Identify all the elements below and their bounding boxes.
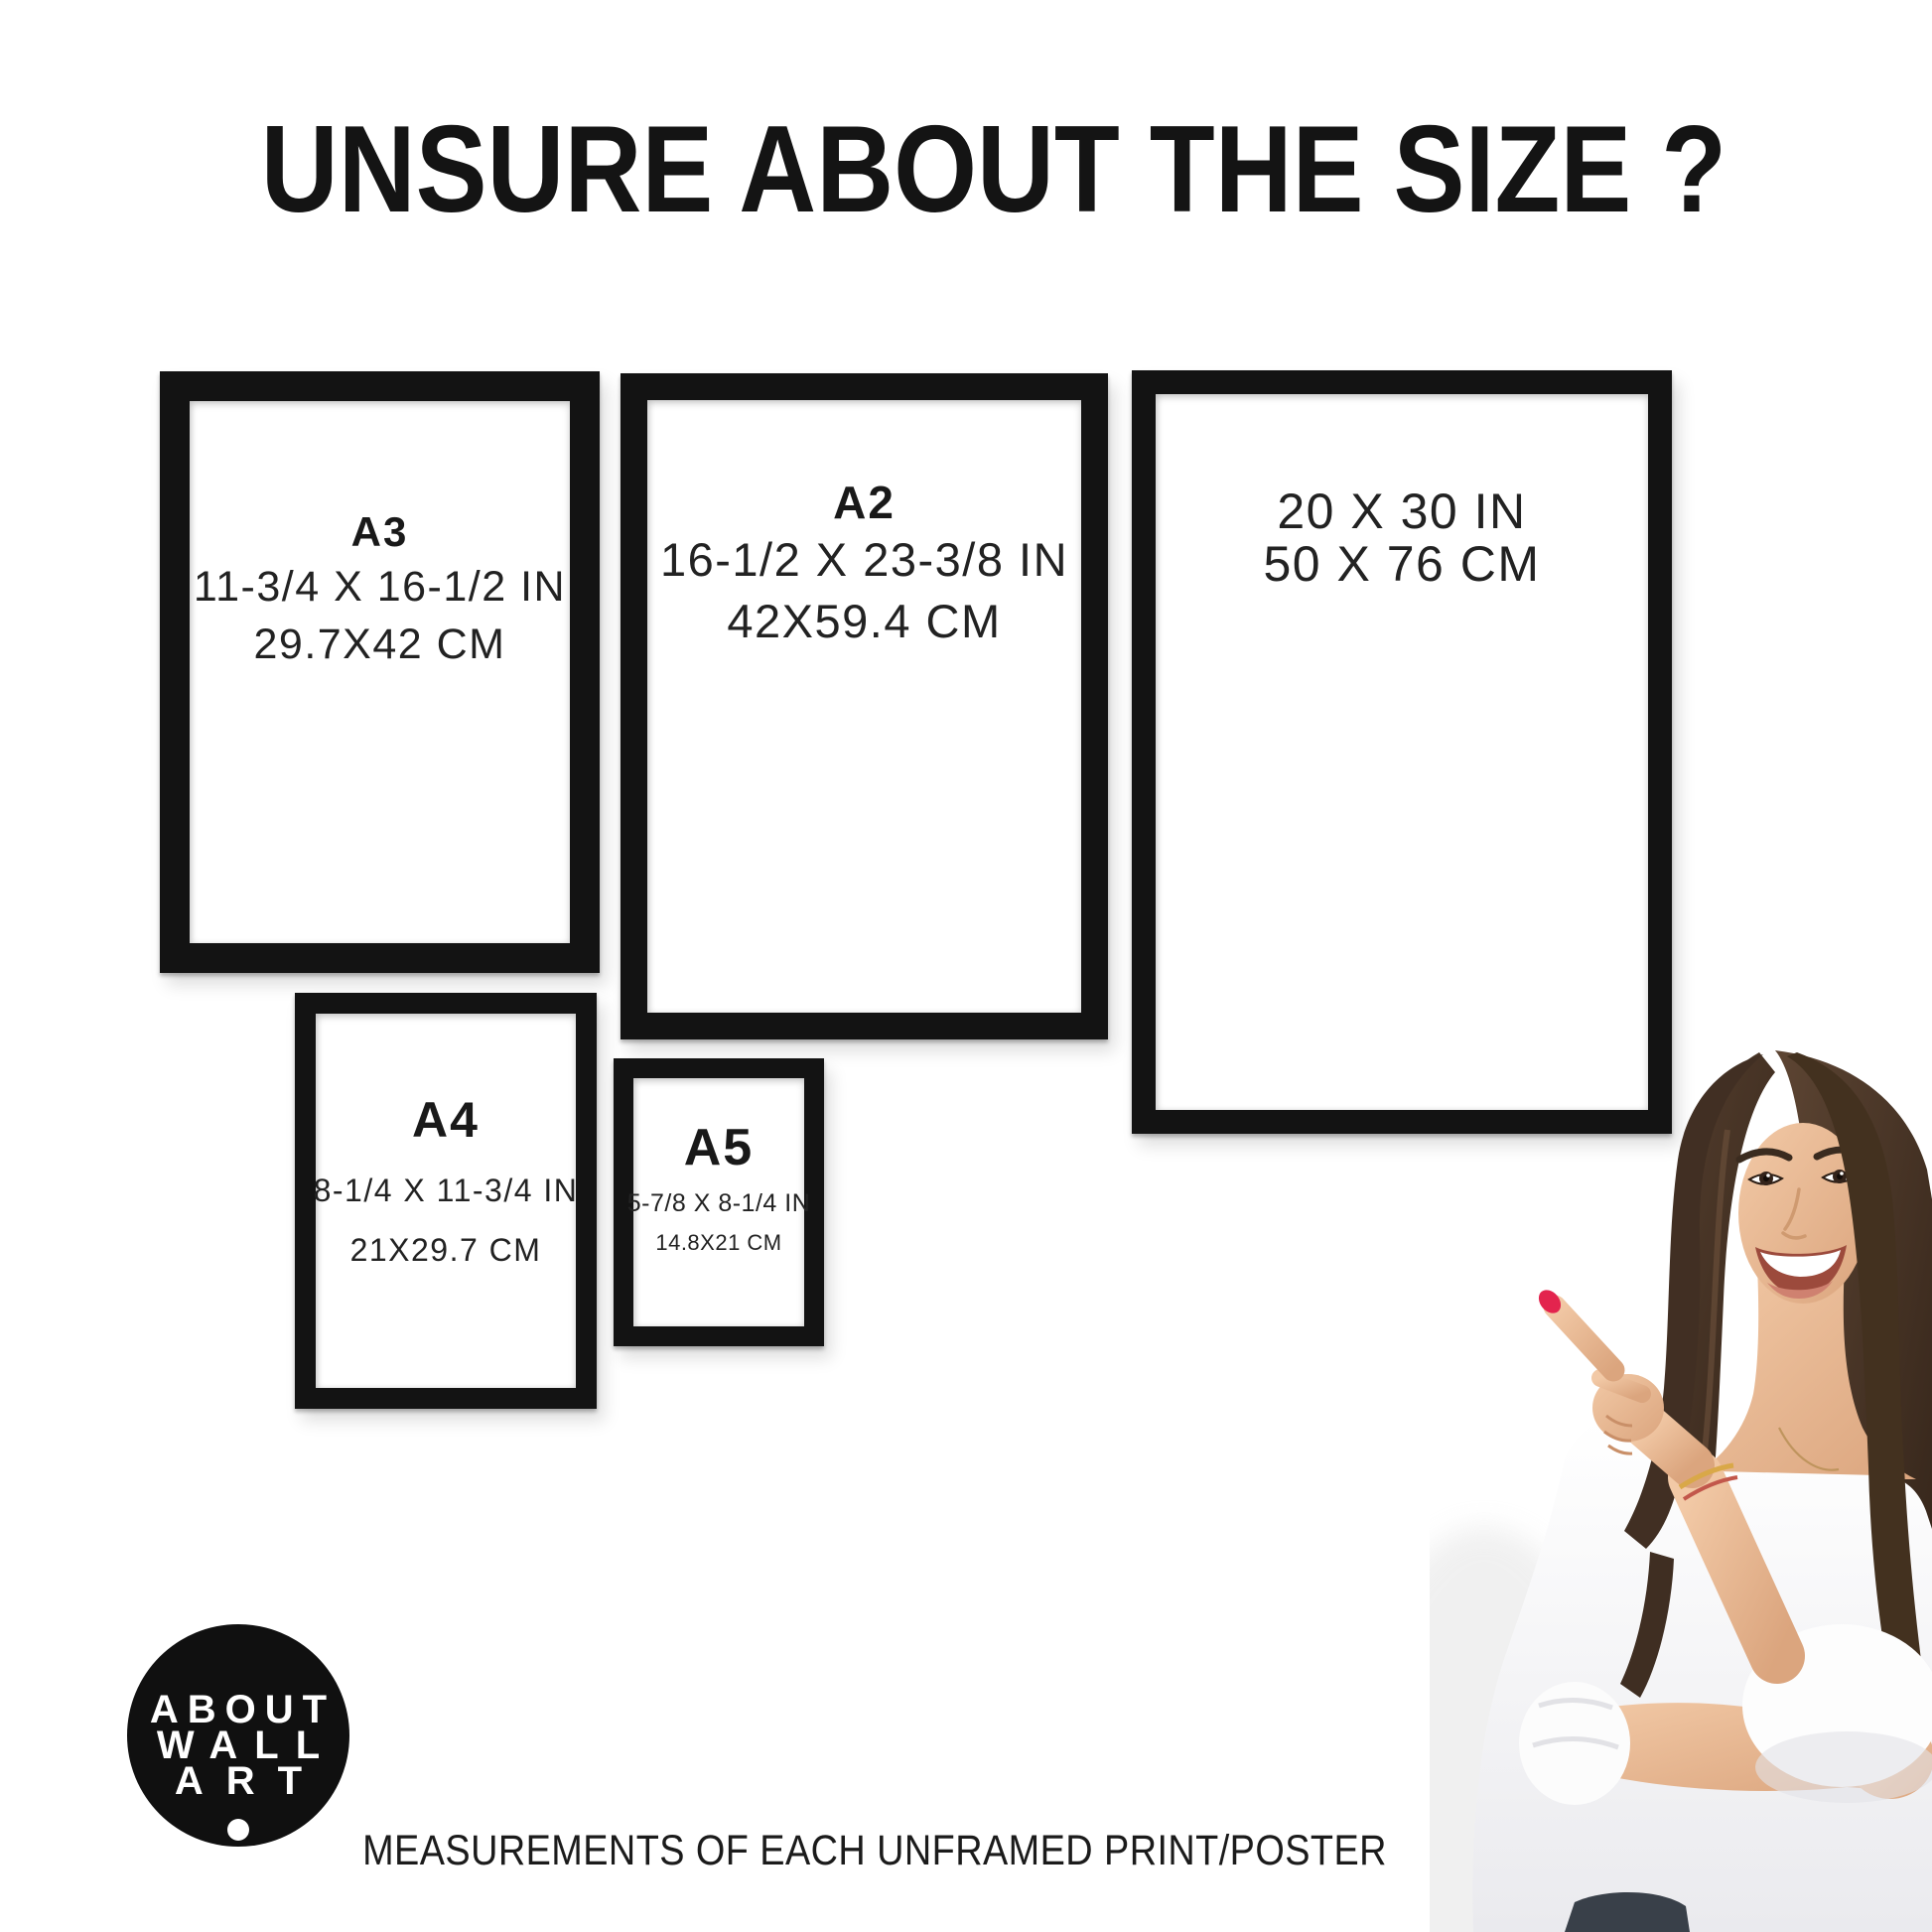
footer-caption: MEASUREMENTS OF EACH UNFRAMED PRINT/POST…	[105, 1827, 1645, 1875]
brand-logo: ABOUT WALL ART	[127, 1624, 349, 1847]
frame-20x30-mat: 20 X 30 IN 50 X 76 CM	[1156, 394, 1648, 1110]
left-eye-highlight	[1766, 1173, 1770, 1177]
index-finger	[1555, 1307, 1613, 1370]
frame-a4: A4 8-1/4 X 11-3/4 IN 21X29.7 CM	[295, 993, 597, 1409]
frame-20x30-cm: 50 X 76 CM	[1263, 538, 1540, 591]
frame-a5-cm: 14.8X21 CM	[655, 1230, 781, 1256]
frame-a4-label: A4	[412, 1091, 480, 1149]
frame-a4-inches: 8-1/4 X 11-3/4 IN	[314, 1173, 579, 1209]
frame-a2-inches: 16-1/2 X 23-3/8 IN	[660, 532, 1068, 587]
frame-a3-mat: A3 11-3/4 X 16-1/2 IN 29.7X42 CM	[190, 401, 570, 943]
logo-word-about: ABOUT	[141, 1692, 336, 1727]
sleeve-shade	[1755, 1731, 1932, 1803]
frame-a3: A3 11-3/4 X 16-1/2 IN 29.7X42 CM	[160, 371, 600, 973]
frame-a3-cm: 29.7X42 CM	[253, 621, 505, 669]
frame-a5-inches: 5-7/8 X 8-1/4 IN	[627, 1189, 810, 1218]
logo-word-art: ART	[152, 1763, 325, 1799]
frame-a3-label: A3	[351, 508, 409, 556]
right-eye-highlight	[1840, 1172, 1844, 1175]
model-photo	[1430, 1011, 1932, 1932]
logo-word-wall: WALL	[140, 1727, 337, 1763]
frame-a2-cm: 42X59.4 CM	[727, 594, 1001, 648]
page-title: UNSURE ABOUT THE SIZE ?	[153, 99, 1834, 240]
frame-a2: A2 16-1/2 X 23-3/8 IN 42X59.4 CM	[621, 373, 1108, 1039]
frame-a5-mat: A5 5-7/8 X 8-1/4 IN 14.8X21 CM	[633, 1078, 804, 1326]
frame-20x30-inches: 20 X 30 IN	[1277, 485, 1526, 538]
frame-a5-label: A5	[684, 1118, 754, 1177]
frame-a2-label: A2	[833, 476, 896, 529]
size-guide-infographic: UNSURE ABOUT THE SIZE ? A3 11-3/4 X 16-1…	[0, 0, 1932, 1932]
frame-a5: A5 5-7/8 X 8-1/4 IN 14.8X21 CM	[614, 1058, 824, 1346]
frame-a3-inches: 11-3/4 X 16-1/2 IN	[194, 563, 566, 612]
frame-a4-cm: 21X29.7 CM	[350, 1232, 542, 1269]
frame-a2-mat: A2 16-1/2 X 23-3/8 IN 42X59.4 CM	[647, 400, 1081, 1013]
frame-a4-mat: A4 8-1/4 X 11-3/4 IN 21X29.7 CM	[316, 1014, 576, 1388]
